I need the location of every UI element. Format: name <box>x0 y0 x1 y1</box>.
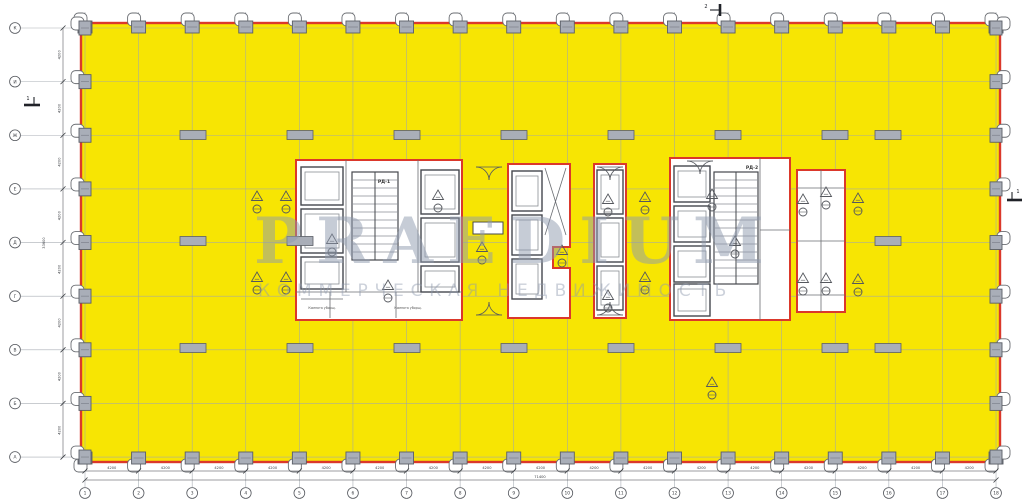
elevator-shaft <box>301 167 343 205</box>
annotation-text: А <box>13 455 16 461</box>
interior-column <box>822 344 848 353</box>
interior-column <box>822 131 848 140</box>
annotation-text: РД-2 <box>746 165 758 171</box>
annotation-text: 6 <box>352 491 355 497</box>
interior-column <box>875 344 901 353</box>
interior-column <box>608 131 634 140</box>
annotation-text: Комната уборщ. <box>308 306 335 310</box>
annotation-text: 11 <box>618 491 624 497</box>
annotation-text: 4200 <box>161 466 171 470</box>
annotation-text: 4200 <box>58 264 62 274</box>
annotation-text: 1 <box>1016 189 1019 195</box>
interior-column <box>394 344 420 353</box>
interior-column <box>394 131 420 140</box>
annotation-text: 17 <box>940 491 946 497</box>
interior-column <box>715 344 741 353</box>
watermark-brand-text: PRAEDIUM <box>254 204 778 279</box>
interior-column <box>180 131 206 140</box>
annotation-text: 5 <box>298 491 301 497</box>
annotation-text: 4200 <box>58 318 62 328</box>
annotation-text: 4200 <box>697 466 707 470</box>
interior-column <box>287 344 313 353</box>
annotation-text: 71400 <box>534 475 546 479</box>
interior-column <box>875 237 901 246</box>
annotation-text: 4200 <box>322 466 332 470</box>
interior-column <box>501 131 527 140</box>
annotation-text: 4200 <box>965 466 975 470</box>
annotation-text: 1 <box>84 491 87 497</box>
annotation-text: 4200 <box>429 466 439 470</box>
annotation-text: 33600 <box>42 237 46 249</box>
annotation-text: 16 <box>886 491 892 497</box>
interior-column <box>608 344 634 353</box>
interior-column <box>715 131 741 140</box>
annotation-text: 4200 <box>482 466 492 470</box>
annotation-text: 4200 <box>643 466 653 470</box>
annotation-text: 12 <box>672 491 678 497</box>
annotation-text: 10 <box>565 491 571 497</box>
annotation-text: 4200 <box>375 466 385 470</box>
annotation-text: 4200 <box>58 210 62 220</box>
watermark-tagline-text: КОММЕРЧЕСКАЯ НЕДВИЖИМОСТЬ <box>258 281 733 301</box>
annotation-text: РД-1 <box>378 179 390 185</box>
annotation-text: Е <box>14 187 17 193</box>
annotation-text: 4200 <box>911 466 921 470</box>
annotation-text: 15 <box>832 491 838 497</box>
annotation-text: 18 <box>993 491 999 497</box>
annotation-text: 9 <box>512 491 515 497</box>
annotation-text: 13 <box>725 491 731 497</box>
annotation-text: Комната уборщ. <box>394 306 421 310</box>
floor-plan-page: РД-1Комната уборщ.Комната уборщ.РД-24200… <box>0 0 1024 504</box>
annotation-text: 8 <box>459 491 462 497</box>
annotation-text: 2 <box>137 491 140 497</box>
annotation-text: 4200 <box>590 466 600 470</box>
annotation-text: 4200 <box>58 50 62 60</box>
annotation-text: 4200 <box>58 371 62 381</box>
interior-column <box>501 344 527 353</box>
annotation-text: Г <box>14 294 17 300</box>
annotation-text: 4200 <box>268 466 278 470</box>
annotation-text: 14 <box>779 491 785 497</box>
annotation-text: 4200 <box>107 466 117 470</box>
annotation-text: 4200 <box>536 466 546 470</box>
interior-column <box>180 344 206 353</box>
watermark: PRAEDIUMКОММЕРЧЕСКАЯ НЕДВИЖИМОСТЬ <box>254 204 778 301</box>
interior-column <box>180 237 206 246</box>
annotation-text: 4200 <box>857 466 867 470</box>
interior-column <box>875 131 901 140</box>
annotation-text: 4200 <box>214 466 224 470</box>
annotation-text: 4200 <box>58 425 62 435</box>
annotation-text: 2 <box>704 4 707 10</box>
annotation-text: 1 <box>26 96 29 102</box>
annotation-text: 4200 <box>804 466 814 470</box>
annotation-text: 3 <box>191 491 194 497</box>
annotation-text: Б <box>13 401 16 407</box>
annotation-text: 4 <box>244 491 247 497</box>
core-block <box>797 170 845 312</box>
annotation-text: 4200 <box>750 466 760 470</box>
annotation-text: 4200 <box>58 103 62 113</box>
annotation-text: В <box>13 347 16 353</box>
annotation-text: 7 <box>405 491 408 497</box>
annotation-text: Д <box>13 240 17 246</box>
floor-plan-canvas: РД-1Комната уборщ.Комната уборщ.РД-24200… <box>0 0 1024 504</box>
interior-column <box>287 131 313 140</box>
annotation-text: Ж <box>13 133 18 139</box>
annotation-text: 4200 <box>58 157 62 167</box>
annotation-text: И <box>13 79 16 85</box>
